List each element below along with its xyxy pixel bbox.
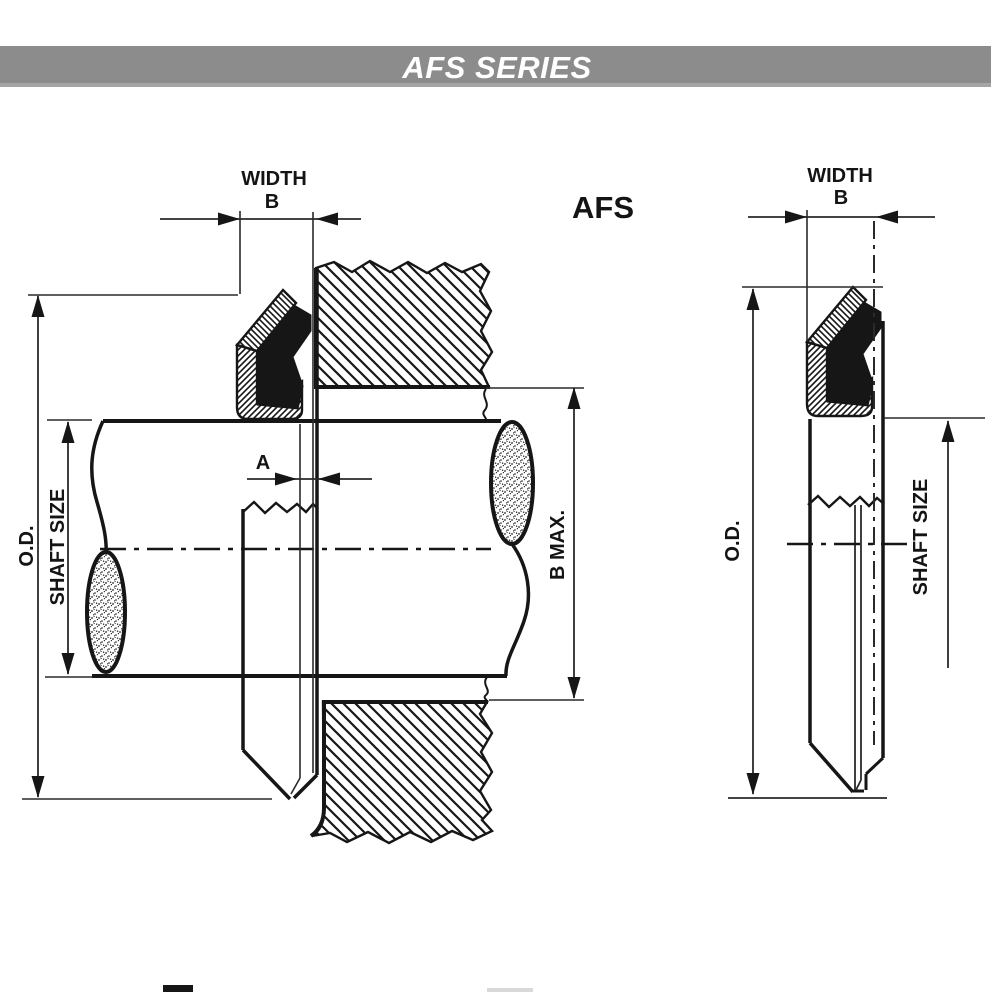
arrow-right-icon [218,213,240,226]
arrow-down-icon [62,653,75,675]
shaft-size-label-right: SHAFT SIZE [910,479,932,596]
profile-chamfer-right [866,758,883,774]
shaft [87,421,533,676]
arrow-up-icon [747,288,760,310]
arrow-left-icon [316,213,338,226]
lower-housing-section [311,677,492,843]
od-label-right: O.D. [722,520,744,561]
arrow-up-icon [62,421,75,443]
dim-a: A [247,452,372,486]
shaft-left-break-curve [92,421,106,555]
dim-shaft-size-left: SHAFT SIZE [45,420,92,677]
flange-chamfer-left [243,750,290,799]
afs-technical-drawing: AFS SERIES [0,0,991,992]
width-label-left: WIDTH [241,168,307,190]
header-banner: AFS SERIES [0,46,991,87]
shaft-right-break-curve [506,544,529,676]
arrow-left-icon [876,211,898,224]
arrow-left-icon [318,473,340,486]
od-label-left: O.D. [16,525,38,566]
lower-housing-body [312,702,492,843]
arrow-down-icon [568,677,581,699]
series-title: AFS [572,190,634,225]
flange-chamfer-right [294,775,317,798]
housing-break-squiggle-top [483,389,487,421]
arrow-down-icon [32,776,45,798]
shaft-right-break-section [491,422,533,544]
arrow-up-icon [942,420,955,442]
seal-section-right-view [807,287,881,416]
b-max-label: B MAX. [547,510,569,580]
a-label: A [256,452,270,474]
page-artifact-mark [163,985,193,992]
profile-break-top [808,496,884,507]
left-view: WIDTH B A O.D. SHAFT SIZE [16,168,634,843]
profile-inner-chamfer [856,780,861,790]
page-artifact-smudge [487,988,533,992]
upper-housing-body [316,261,492,387]
seal-section-left-view [237,290,311,419]
profile-chamfer-left [810,743,853,792]
upper-housing-section [314,261,492,421]
width-value-left: B [265,191,279,213]
arrow-up-icon [568,387,581,409]
shaft-left-break-section [87,552,125,672]
right-view: WIDTH B O.D. SHAFT SIZE [722,165,985,798]
banner-title: AFS SERIES [401,50,591,85]
flange-break-top [243,502,318,513]
housing-break-squiggle-bottom [485,677,488,702]
width-value-right: B [834,187,848,209]
width-label-right: WIDTH [807,165,873,187]
arrow-right-icon [275,473,297,486]
arrow-right-icon [785,211,807,224]
arrow-down-icon [747,773,760,795]
catalog-page: AFS SERIES [0,0,991,992]
shaft-size-label-left: SHAFT SIZE [47,489,69,606]
arrow-up-icon [32,295,45,317]
